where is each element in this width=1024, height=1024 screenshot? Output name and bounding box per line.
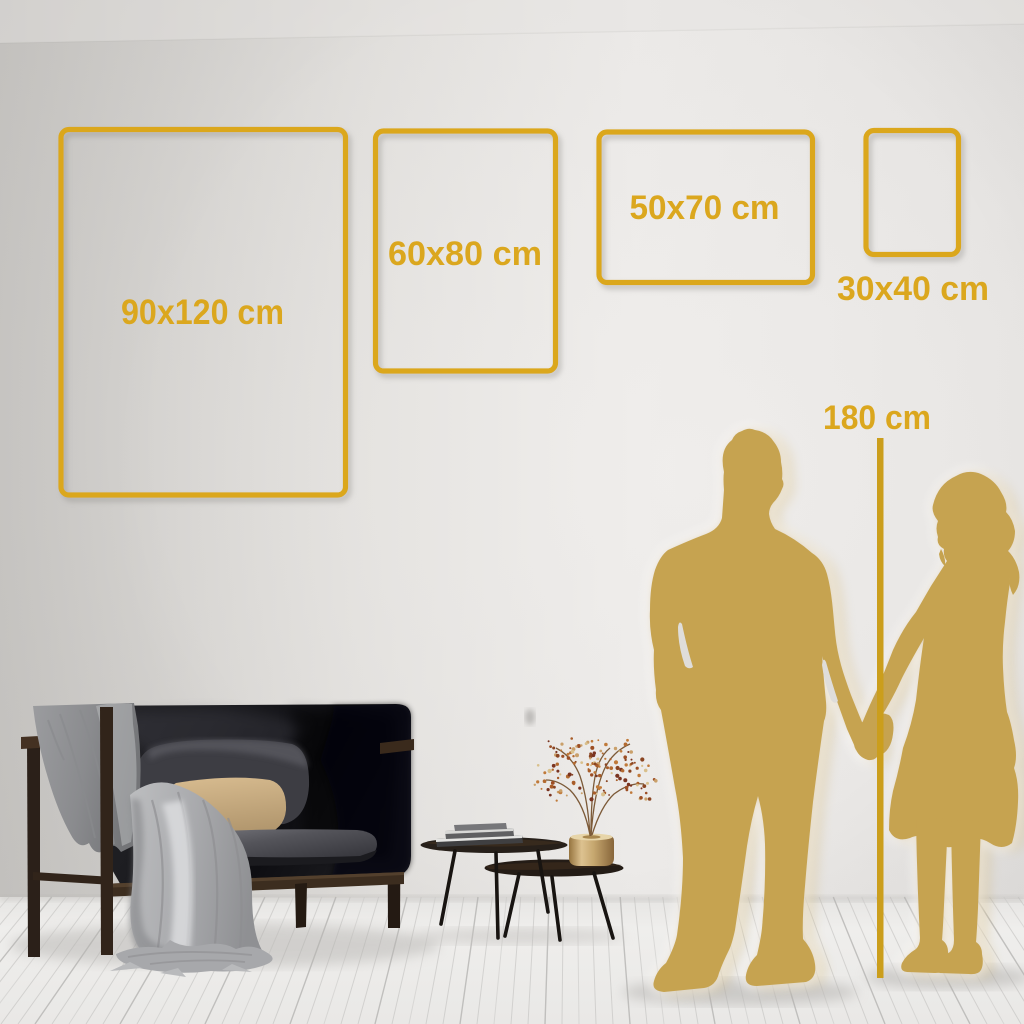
svg-text:180 cm: 180 cm	[823, 399, 931, 437]
svg-text:30x40 cm: 30x40 cm	[837, 270, 989, 308]
svg-text:60x80 cm: 60x80 cm	[388, 235, 542, 273]
svg-text:50x70 cm: 50x70 cm	[630, 189, 780, 227]
svg-text:90x120 cm: 90x120 cm	[121, 293, 284, 332]
